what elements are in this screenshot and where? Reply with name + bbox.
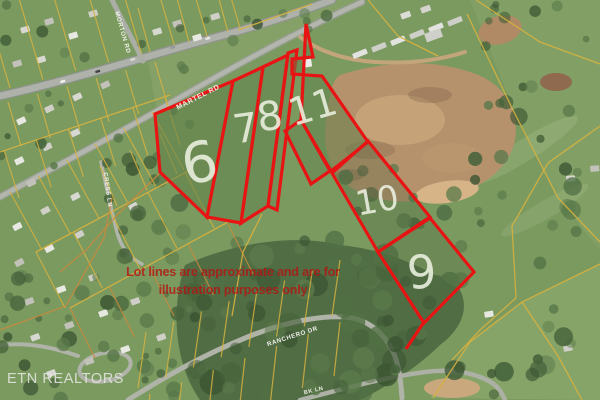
watermark: ETN REALTORS	[7, 371, 124, 387]
map-canvas: 6 7 8 11 10 9 MARTEL RD MORTON RD CRESS …	[0, 0, 600, 400]
aerial-parcel-map: 6 7 8 11 10 9 MARTEL RD MORTON RD CRESS …	[0, 0, 600, 400]
disclaimer-line2: illustration purposes only	[159, 283, 308, 297]
lot-10-number: 10	[352, 178, 402, 225]
lot-9-number: 9	[405, 244, 439, 300]
disclaimer-line1: Lot lines are approximate and are for	[126, 265, 340, 279]
